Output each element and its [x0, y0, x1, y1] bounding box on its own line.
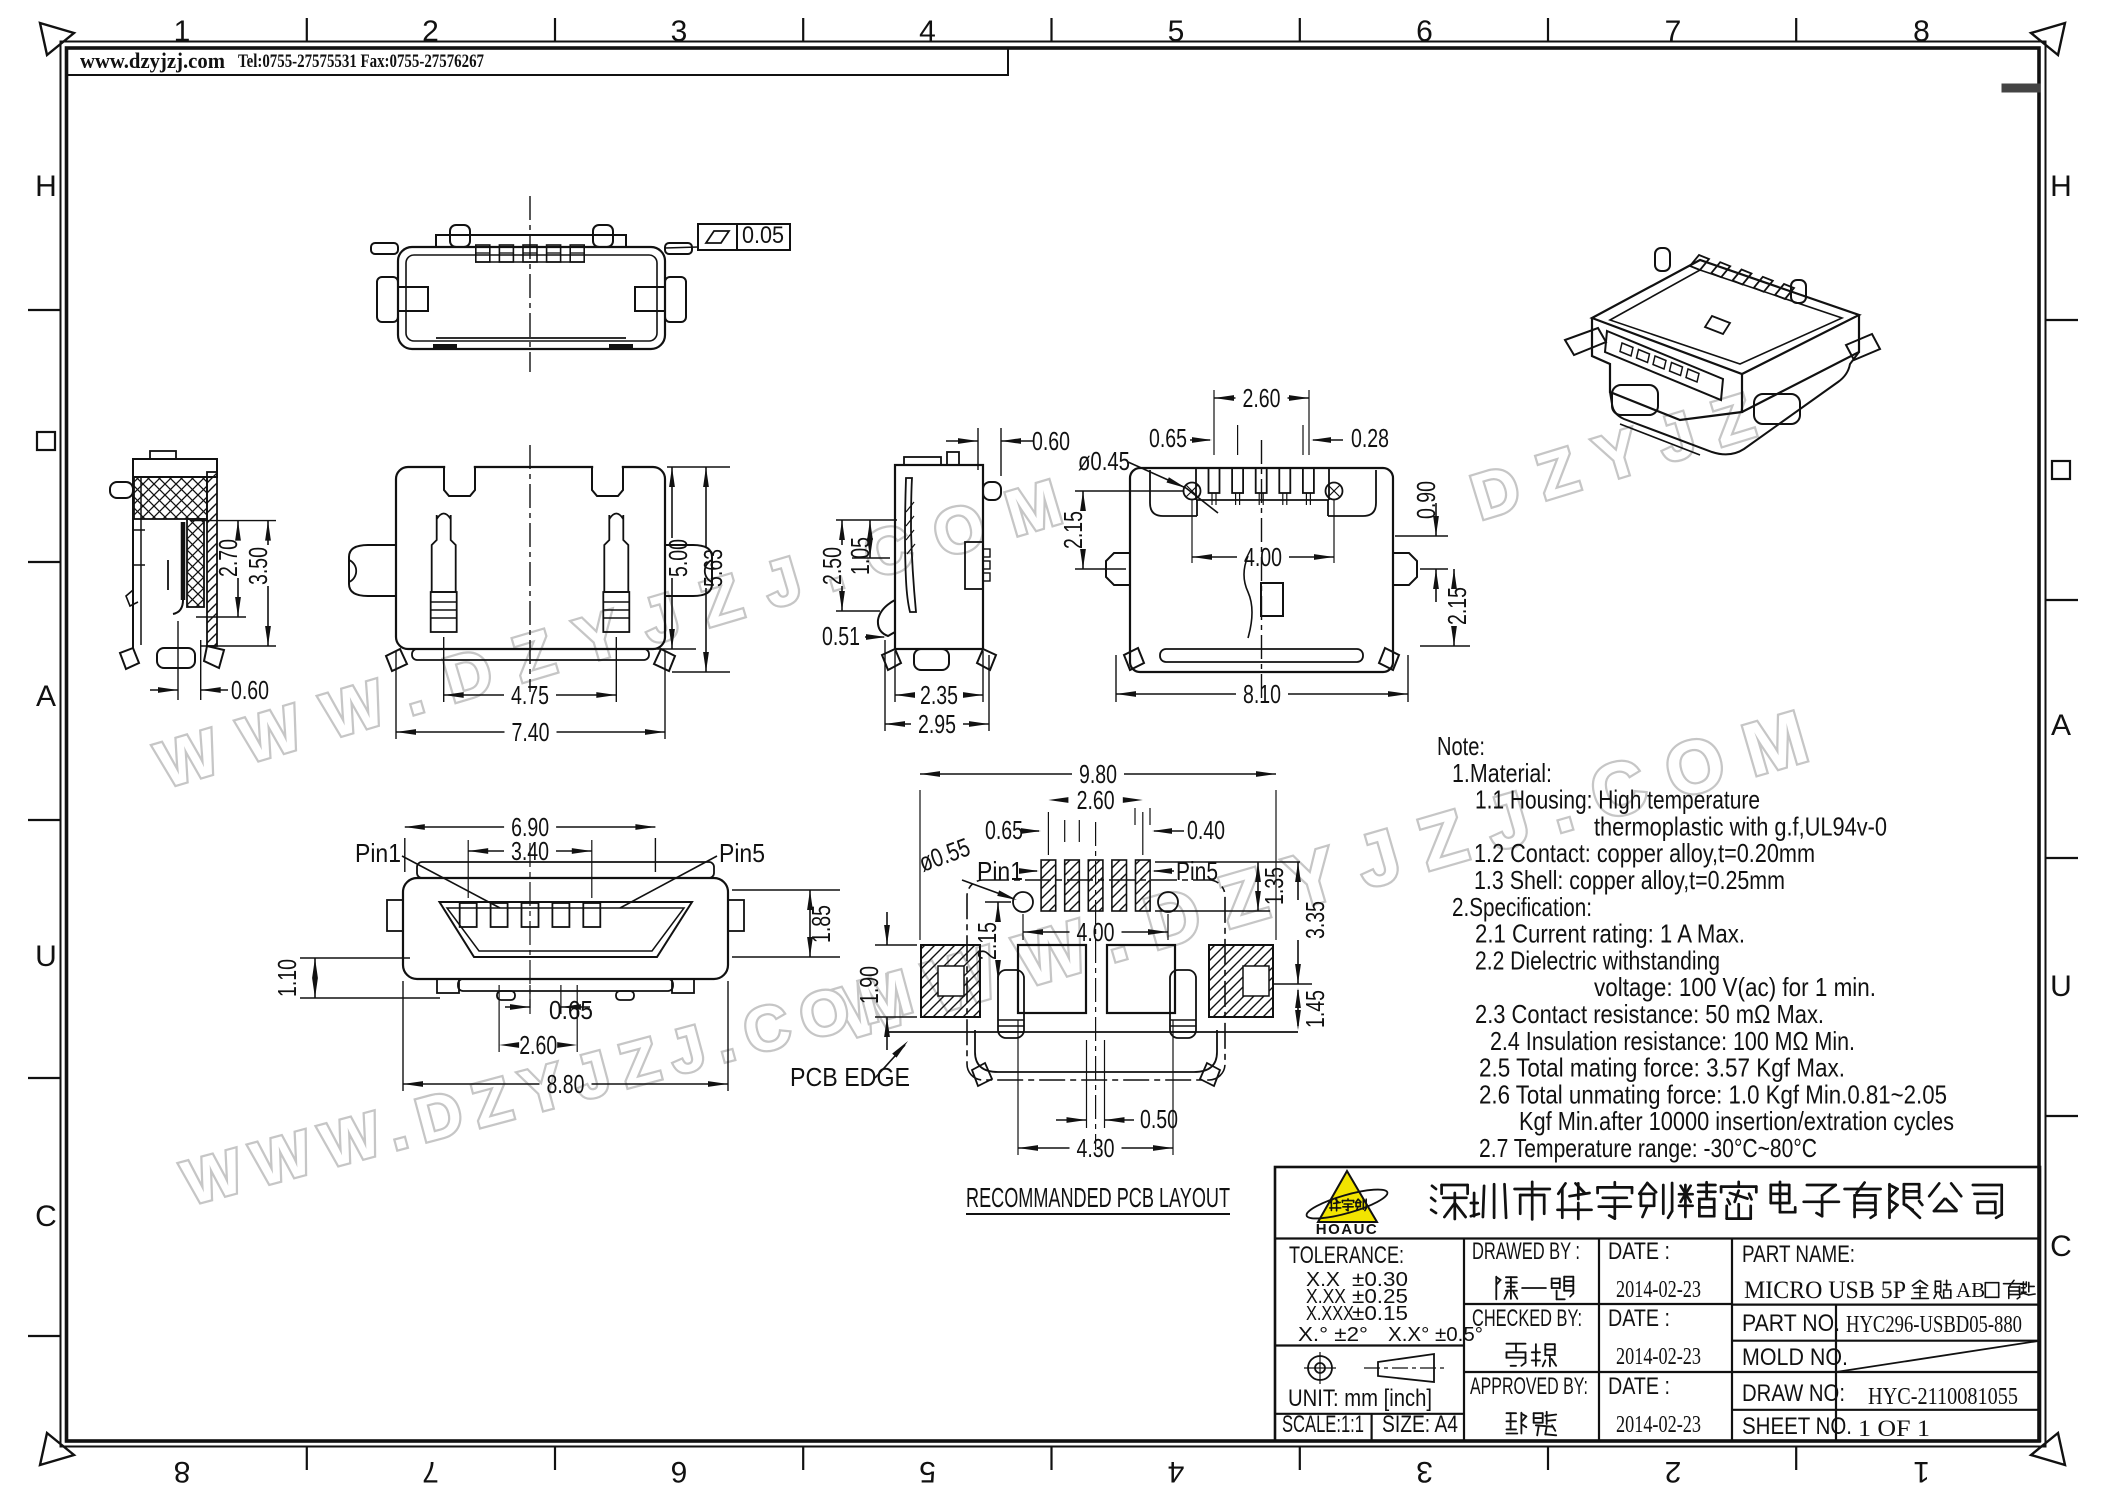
svg-text:U: U: [35, 940, 57, 973]
svg-text:3: 3: [1416, 1455, 1433, 1488]
svg-text:APPROVED BY:: APPROVED BY:: [1470, 1373, 1588, 1400]
svg-text:2.60: 2.60: [1077, 785, 1115, 815]
svg-text:HYC-2110081055: HYC-2110081055: [1868, 1384, 2018, 1410]
svg-text:7.40: 7.40: [512, 717, 550, 747]
svg-text:H: H: [2050, 170, 2072, 203]
svg-text:7: 7: [422, 1455, 439, 1488]
svg-text:HOAUC: HOAUC: [1316, 1221, 1379, 1238]
svg-text:3.50: 3.50: [243, 547, 273, 585]
svg-text:DRAW NO:: DRAW NO:: [1742, 1380, 1845, 1407]
svg-text:8.80: 8.80: [547, 1069, 585, 1099]
svg-text:X.XXX: X.XXX: [1306, 1303, 1354, 1325]
svg-text:X.X° ±0.5°: X.X° ±0.5°: [1388, 1324, 1483, 1346]
svg-text:1.1 Housing: High temperatu: 1.1 Housing: High temperature: [1475, 785, 1760, 815]
svg-text:1.05: 1.05: [845, 537, 875, 575]
svg-text:±0.15: ±0.15: [1352, 1303, 1408, 1325]
svg-text:U: U: [2050, 970, 2072, 1003]
svg-text:DRAWED BY :: DRAWED BY :: [1472, 1238, 1580, 1265]
svg-text:PART NO.: PART NO.: [1742, 1310, 1840, 1337]
svg-text:2.Specification:: 2.Specification:: [1452, 892, 1592, 922]
svg-text:2014-02-23: 2014-02-23: [1616, 1412, 1701, 1438]
svg-text:C: C: [35, 1200, 57, 1233]
svg-text:TOLERANCE:: TOLERANCE:: [1289, 1242, 1404, 1269]
svg-text:4.00: 4.00: [1244, 542, 1282, 572]
svg-text:5: 5: [1168, 15, 1185, 48]
svg-text:2014-02-23: 2014-02-23: [1616, 1344, 1701, 1370]
svg-text:2.15: 2.15: [1058, 511, 1088, 549]
svg-text:UNIT: mm [inch]: UNIT: mm [inch]: [1288, 1385, 1432, 1412]
svg-text:2.95: 2.95: [918, 709, 956, 739]
svg-text:MICRO USB 5P: MICRO USB 5P: [1744, 1277, 1906, 1304]
svg-text:6: 6: [671, 1455, 688, 1488]
svg-text:6: 6: [1416, 15, 1433, 48]
svg-text:3: 3: [671, 15, 688, 48]
svg-text:0.51: 0.51: [822, 621, 860, 651]
svg-text:thermoplastic with g.f,UL94v: thermoplastic with g.f,UL94v-0: [1594, 811, 1887, 841]
svg-text:RECOMMANDED PCB LAYOUT: RECOMMANDED PCB LAYOUT: [966, 1182, 1230, 1213]
svg-text:1 OF 1: 1 OF 1: [1858, 1416, 1930, 1441]
svg-text:MOLD NO.: MOLD NO.: [1742, 1344, 1848, 1371]
svg-text:HYC296-USBD05-880: HYC296-USBD05-880: [1846, 1312, 2022, 1338]
svg-text:0.60: 0.60: [1032, 426, 1070, 456]
svg-text:2.6 Total unmating force:: 2.6 Total unmating force: 1.0 Kgf Min.0.…: [1479, 1079, 1947, 1109]
svg-text:2.60: 2.60: [1243, 383, 1281, 413]
svg-text:4: 4: [919, 15, 936, 48]
svg-text:Kgf Min.after 10000 inserti: Kgf Min.after 10000 insertion/extration …: [1519, 1106, 1954, 1136]
svg-text:SIZE: A4: SIZE: A4: [1382, 1411, 1458, 1438]
svg-text:2.60: 2.60: [519, 1030, 557, 1060]
svg-text:8.10: 8.10: [1243, 679, 1281, 709]
svg-text:1.35: 1.35: [1259, 867, 1289, 905]
svg-text:PART NAME:: PART NAME:: [1742, 1241, 1855, 1268]
svg-text:Pin1: Pin1: [977, 856, 1023, 886]
svg-text:0.50: 0.50: [1140, 1104, 1178, 1134]
svg-text:1.3 Shell: copper alloy,t=0: 1.3 Shell: copper alloy,t=0.25mm: [1474, 865, 1785, 895]
svg-text:Pin1: Pin1: [355, 838, 401, 868]
svg-text:1.10: 1.10: [272, 959, 302, 997]
svg-text:www.dzyjzj.com: www.dzyjzj.com: [80, 48, 225, 73]
svg-text:0.28: 0.28: [1351, 423, 1389, 453]
svg-text:5.63: 5.63: [698, 549, 728, 587]
svg-text:DATE :: DATE :: [1608, 1238, 1670, 1265]
svg-text:2.15: 2.15: [1442, 587, 1472, 625]
svg-text:2.35: 2.35: [920, 680, 958, 710]
svg-text:8: 8: [1913, 15, 1930, 48]
svg-text:1.45: 1.45: [1300, 990, 1330, 1028]
svg-text:Note:: Note:: [1437, 731, 1485, 761]
svg-text:SHEET NO.: SHEET NO.: [1742, 1413, 1852, 1440]
svg-text:DATE :: DATE :: [1608, 1373, 1670, 1400]
svg-text:0.05: 0.05: [742, 222, 784, 249]
svg-text:0.60: 0.60: [231, 675, 269, 705]
svg-text:2.5 Total mating force: 3.: 2.5 Total mating force: 3.57 Kgf Max.: [1479, 1053, 1845, 1083]
svg-text:0.65: 0.65: [985, 815, 1023, 845]
svg-text:1.90: 1.90: [854, 966, 884, 1004]
svg-text:A: A: [36, 680, 56, 713]
svg-text:ø0.45: ø0.45: [1078, 446, 1130, 476]
svg-text:2.7 Temperature range: -30°: 2.7 Temperature range: -30°C~80°C: [1479, 1133, 1817, 1163]
svg-text:4.30: 4.30: [1077, 1133, 1115, 1163]
svg-text:8: 8: [174, 1455, 191, 1488]
svg-text:Pin5: Pin5: [1176, 856, 1218, 886]
svg-text:1: 1: [174, 15, 191, 48]
svg-text:3.35: 3.35: [1300, 901, 1330, 939]
svg-text:4.75: 4.75: [511, 680, 549, 710]
svg-text:2.3 Contact resistance: 50: 2.3 Contact resistance: 50 mΩ Max.: [1475, 999, 1824, 1029]
svg-text:0.65: 0.65: [549, 995, 593, 1025]
svg-text:4.00: 4.00: [1077, 917, 1115, 947]
svg-text:7: 7: [1665, 15, 1682, 48]
svg-text:DATE :: DATE :: [1608, 1305, 1670, 1332]
svg-text:voltage: 100 V(ac) for 1: voltage: 100 V(ac) for 1 min.: [1594, 972, 1876, 1002]
svg-text:5: 5: [919, 1455, 936, 1488]
svg-text:H: H: [35, 170, 57, 203]
svg-text:0.90: 0.90: [1411, 481, 1441, 519]
svg-text:1: 1: [1913, 1455, 1930, 1488]
svg-text:2.4 Insulation resistance:: 2.4 Insulation resistance: 100 MΩ Min.: [1490, 1026, 1855, 1056]
svg-text:2.70: 2.70: [213, 539, 243, 577]
svg-text:2: 2: [422, 15, 439, 48]
svg-text:0.40: 0.40: [1187, 815, 1225, 845]
svg-text:2: 2: [1665, 1455, 1682, 1488]
svg-text:SCALE:1:1: SCALE:1:1: [1282, 1411, 1364, 1438]
svg-text:2014-02-23: 2014-02-23: [1616, 1277, 1701, 1303]
svg-text:2.50: 2.50: [817, 547, 847, 585]
svg-text:A: A: [2051, 709, 2071, 742]
svg-text:1.Material:: 1.Material:: [1452, 758, 1552, 788]
svg-text:C: C: [2050, 1230, 2072, 1263]
svg-text:2.1 Current rating: 1 A M: 2.1 Current rating: 1 A Max.: [1475, 919, 1745, 949]
svg-text:1.85: 1.85: [806, 905, 836, 943]
svg-text:CHECKED BY:: CHECKED BY:: [1472, 1305, 1582, 1332]
svg-text:0.65: 0.65: [1149, 423, 1187, 453]
svg-text:PCB EDGE: PCB EDGE: [790, 1062, 910, 1092]
svg-text:4: 4: [1168, 1455, 1185, 1488]
svg-text:AB: AB: [1956, 1278, 1985, 1302]
svg-text:Tel:0755-27575531 Fax:0755-27: Tel:0755-27575531 Fax:0755-27576267: [238, 51, 484, 72]
svg-text:1.2 Contact: copper alloy,t: 1.2 Contact: copper alloy,t=0.20mm: [1474, 838, 1815, 868]
svg-text:Pin5: Pin5: [719, 838, 765, 868]
svg-text:X.° ±2°: X.° ±2°: [1298, 1324, 1368, 1346]
svg-text:2.2 Dielectric withstanding: 2.2 Dielectric withstanding: [1475, 945, 1720, 975]
svg-text:5.00: 5.00: [663, 539, 693, 577]
